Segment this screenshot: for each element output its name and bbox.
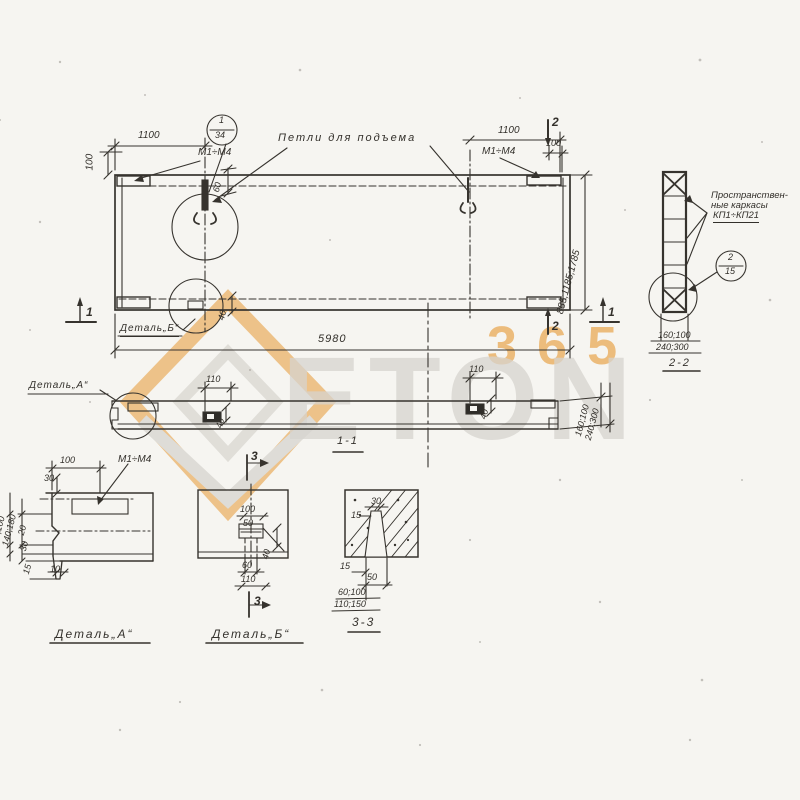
- section-3-3-label: 3-3: [352, 616, 375, 629]
- detail-a-mark: М1÷М4: [118, 455, 151, 466]
- s33-dim-row1: 60;100: [338, 588, 366, 597]
- s33-dim-50: 50: [367, 573, 377, 582]
- dim-100-right: 100: [546, 139, 561, 148]
- s33-dim-15a: 15: [351, 511, 361, 520]
- dim-110-left: 110: [206, 375, 220, 384]
- callout-2-bottom: 15: [725, 267, 735, 276]
- s33-dim-row2: 110;150: [334, 600, 366, 609]
- dims-22-row2: 240;300: [656, 343, 689, 352]
- detail-a-dim-10: 10: [50, 565, 60, 574]
- detail-b-dim-110: 110: [241, 575, 255, 584]
- detail-a-dim-30: 30: [44, 474, 54, 483]
- spatial-frames-note-line3: КП1÷КП21: [713, 211, 759, 223]
- detail-b-dim-50: 50: [243, 519, 253, 528]
- dim-110-right: 110: [469, 365, 483, 374]
- section-2-marker-bottom: 2: [552, 320, 559, 333]
- detail-a-label: Деталь„А“: [55, 628, 133, 641]
- dim-overall-5980: 5980: [318, 334, 346, 346]
- detail-b-dim-60: 60: [242, 561, 252, 570]
- detail-b-marker-3-top: 3: [251, 450, 258, 463]
- dim-1100-left: 1100: [138, 131, 160, 142]
- detail-b-label: Деталь„Б“: [212, 628, 290, 641]
- callout-bottom-number: 34: [215, 131, 225, 140]
- dims-22-row1: 160;100: [658, 331, 691, 340]
- detail-b-reference: Деталь„Б“: [120, 324, 179, 337]
- detail-b-marker-3-bottom: 3: [254, 595, 261, 608]
- lifting-loops-note: Петли для подъема: [278, 133, 416, 145]
- drawing-linework: [0, 0, 800, 800]
- section-2-marker-top: 2: [552, 116, 559, 129]
- section-1-1-label: 1-1: [337, 436, 359, 448]
- section-1-marker-left: 1: [86, 306, 93, 319]
- s33-dim-15b: 15: [340, 562, 350, 571]
- dim-100-left: 100: [86, 154, 97, 171]
- section-1-marker-right: 1: [608, 306, 615, 319]
- blueprint-sheet: 365 ETON: [0, 0, 800, 800]
- mark-m1-m4-right: М1÷М4: [482, 147, 515, 158]
- mark-m1-m4-left: М1÷М4: [198, 148, 231, 159]
- dim-1100-right: 1100: [498, 126, 520, 137]
- detail-a-reference: Деталь„А“: [29, 381, 88, 392]
- detail-b-dim-100: 100: [240, 505, 255, 514]
- callout-2-top: 2: [728, 253, 733, 262]
- callout-top-number: 1: [219, 116, 224, 125]
- detail-a-dim-100: 100: [60, 456, 75, 465]
- section-2-2-label: 2-2: [669, 358, 691, 370]
- s33-dim-30: 30: [371, 497, 381, 506]
